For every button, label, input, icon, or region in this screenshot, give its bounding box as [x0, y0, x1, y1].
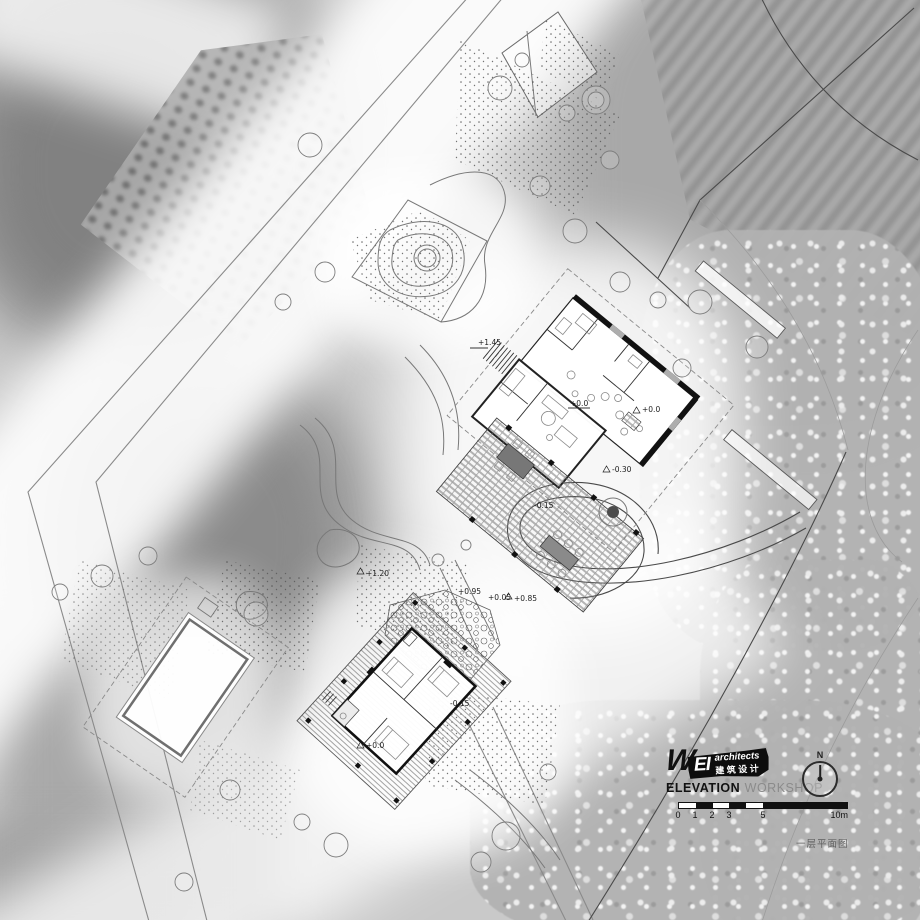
- level-annotation: +1.20: [366, 569, 389, 578]
- north-label: N: [798, 750, 842, 760]
- north-circle: [802, 761, 838, 797]
- drawing-caption: 一层平面图: [796, 836, 849, 850]
- scale-bar-track: [678, 802, 848, 809]
- scale-segment: [729, 803, 746, 808]
- scale-tick-label: 2: [709, 810, 714, 820]
- logo-letters-ei: EI: [694, 754, 711, 777]
- scale-tick-label: 3: [726, 810, 731, 820]
- site-plan-sheet: +1.45 +1.20 +0.95 +0.85 +0.0 +0.0 -0.30 …: [0, 0, 920, 920]
- level-annotation: -0.15: [450, 699, 470, 708]
- level-annotation: +0.0: [366, 741, 384, 750]
- logo-brush-stroke: EI architects 建筑设计: [688, 748, 770, 780]
- level-annotation: -0.15: [534, 501, 554, 510]
- level-annotation: +0.85: [514, 594, 537, 603]
- scale-segment: [696, 803, 713, 808]
- level-annotation: +0.0: [642, 405, 660, 414]
- logo-elevation-label: ELEVATION: [666, 781, 740, 795]
- scale-segment: [713, 803, 730, 808]
- scale-tick-label: 0: [675, 810, 680, 820]
- retaining-strip-lower: [724, 430, 817, 510]
- north-hub: [818, 777, 823, 782]
- scale-segment: [679, 803, 696, 808]
- scale-tick-label: 1: [692, 810, 697, 820]
- logo-chinese-label: 建筑设计: [715, 761, 762, 776]
- scale-tick-label: 5: [760, 810, 765, 820]
- level-annotation: +0.95: [458, 587, 481, 596]
- north-arrow: N: [798, 750, 842, 797]
- scale-segment: [746, 803, 763, 808]
- level-annotation: +0.0: [570, 399, 588, 408]
- scale-tick-label: 10m: [830, 810, 848, 820]
- level-annotation: +0.05: [488, 593, 511, 602]
- scale-segment: [763, 803, 847, 808]
- level-annotation: +1.45: [478, 338, 501, 347]
- scale-bar: 0 1 2 3 5 10m: [678, 802, 848, 821]
- level-annotation: -0.30: [612, 465, 632, 474]
- scale-bar-labels: 0 1 2 3 5 10m: [678, 809, 848, 821]
